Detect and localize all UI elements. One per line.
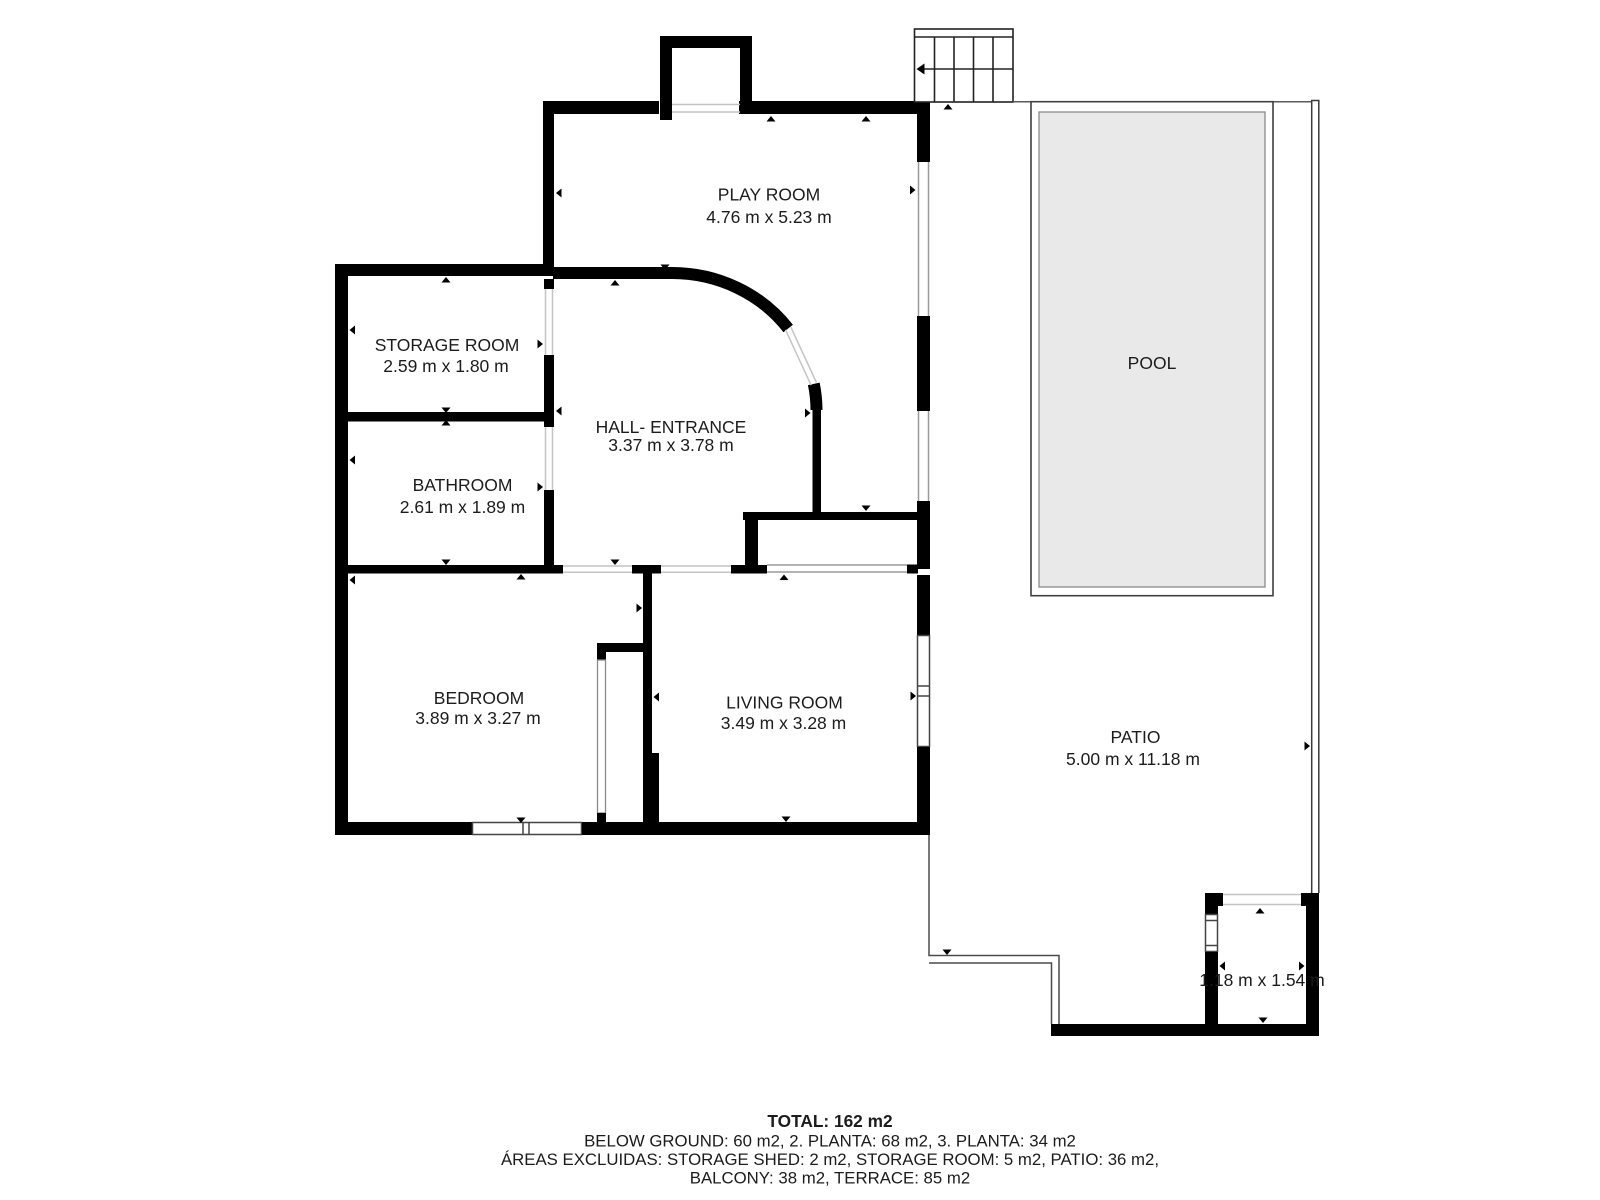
svg-text:2.59 m x 1.80 m: 2.59 m x 1.80 m <box>383 356 508 376</box>
svg-text:TOTAL: 162 m2: TOTAL: 162 m2 <box>767 1111 892 1131</box>
svg-text:POOL: POOL <box>1128 353 1177 373</box>
svg-text:HALL- ENTRANCE: HALL- ENTRANCE <box>596 417 747 437</box>
svg-text:LIVING ROOM: LIVING ROOM <box>726 693 843 713</box>
svg-text:PLAY ROOM: PLAY ROOM <box>718 185 820 205</box>
svg-text:5.00 m x 11.18 m: 5.00 m x 11.18 m <box>1066 749 1200 769</box>
svg-text:BELOW GROUND: 60 m2, 2. PLANTA: BELOW GROUND: 60 m2, 2. PLANTA: 68 m2, 3… <box>584 1132 1076 1151</box>
svg-text:3.49 m x 3.28 m: 3.49 m x 3.28 m <box>721 713 846 733</box>
svg-text:PATIO: PATIO <box>1111 727 1161 747</box>
svg-text:BALCONY: 38 m2, TERRACE: 85 m2: BALCONY: 38 m2, TERRACE: 85 m2 <box>690 1169 970 1188</box>
svg-text:BEDROOM: BEDROOM <box>434 688 524 708</box>
svg-text:BATHROOM: BATHROOM <box>413 475 513 495</box>
svg-text:2.61 m x 1.89 m: 2.61 m x 1.89 m <box>400 497 525 517</box>
svg-text:3.37 m x 3.78 m: 3.37 m x 3.78 m <box>608 435 733 455</box>
svg-text:4.76 m x 5.23 m: 4.76 m x 5.23 m <box>706 207 831 227</box>
svg-text:STORAGE ROOM: STORAGE ROOM <box>375 335 520 355</box>
svg-text:1.18 m x 1.54 m: 1.18 m x 1.54 m <box>1199 970 1324 990</box>
svg-text:3.89 m x 3.27 m: 3.89 m x 3.27 m <box>415 708 540 728</box>
svg-text:ÁREAS EXCLUIDAS: STORAGE SHED:: ÁREAS EXCLUIDAS: STORAGE SHED: 2 m2, STO… <box>501 1150 1159 1169</box>
